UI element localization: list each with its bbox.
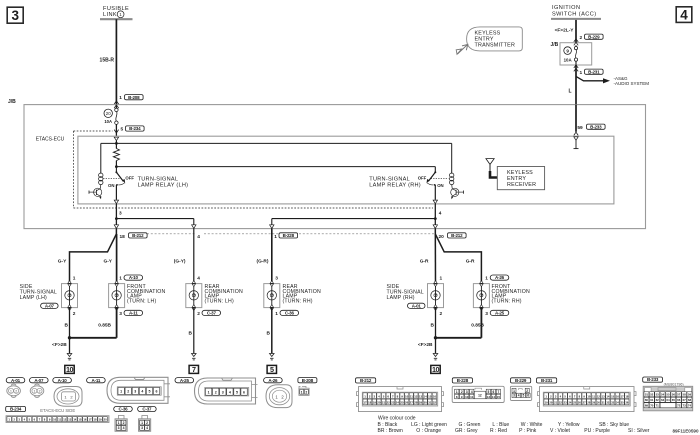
- svg-text:5: 5: [270, 365, 274, 374]
- svg-text:13: 13: [419, 394, 423, 398]
- svg-text:A-01: A-01: [412, 303, 422, 308]
- svg-text:B: B: [65, 322, 69, 328]
- svg-text:B-212: B-212: [451, 233, 463, 238]
- svg-text:17: 17: [621, 394, 624, 398]
- svg-text:C-36: C-36: [119, 407, 129, 412]
- svg-text:OFF: OFF: [125, 176, 134, 181]
- svg-text:12: 12: [478, 394, 482, 398]
- svg-text:2: 2: [73, 311, 76, 317]
- svg-text:1: 1: [141, 421, 143, 425]
- svg-text:14: 14: [424, 394, 428, 398]
- svg-text:B: B: [189, 331, 193, 337]
- svg-text:31: 31: [428, 401, 432, 405]
- svg-text:2: 2: [15, 389, 17, 393]
- svg-text:TURN-SIGNAL: TURN-SIGNAL: [138, 176, 179, 182]
- svg-text:R : Red: R : Red: [490, 428, 507, 434]
- svg-text:69: 69: [645, 404, 649, 408]
- svg-text:4: 4: [141, 390, 143, 394]
- svg-text:72: 72: [677, 404, 681, 408]
- svg-text:18: 18: [120, 234, 126, 240]
- svg-text:20: 20: [439, 234, 445, 240]
- svg-text:SI : Silver: SI : Silver: [628, 428, 650, 434]
- svg-text:2: 2: [440, 311, 443, 317]
- svg-text:G-R: G-R: [466, 259, 475, 265]
- svg-text:2: 2: [197, 311, 200, 317]
- svg-text:J/B: J/B: [551, 42, 559, 48]
- svg-text:-AUDIO SYSTEM: -AUDIO SYSTEM: [614, 81, 650, 86]
- svg-text:13: 13: [68, 418, 71, 422]
- svg-text:4: 4: [123, 426, 125, 430]
- svg-text:(TURN: RH): (TURN: RH): [283, 298, 313, 304]
- svg-text:G-R: G-R: [420, 259, 429, 265]
- svg-text:10A: 10A: [564, 58, 573, 63]
- svg-text:14: 14: [606, 394, 609, 398]
- svg-text:19: 19: [99, 418, 102, 422]
- svg-text:<F>2L-Y: <F>2L-Y: [555, 28, 575, 34]
- svg-text:<F>2B: <F>2B: [418, 342, 433, 348]
- svg-text:ENTRY: ENTRY: [475, 36, 494, 42]
- svg-text:1: 1: [456, 390, 458, 394]
- svg-text:11: 11: [592, 394, 595, 398]
- svg-text:56: 56: [672, 393, 676, 397]
- svg-text:3: 3: [222, 390, 224, 394]
- svg-text:3: 3: [118, 426, 120, 430]
- svg-text:29: 29: [592, 401, 595, 405]
- svg-text:6: 6: [492, 390, 494, 394]
- svg-text:3: 3: [513, 394, 515, 398]
- svg-text:3: 3: [11, 8, 19, 23]
- svg-text:1: 1: [119, 275, 122, 281]
- svg-text:27: 27: [410, 401, 414, 405]
- svg-text:20: 20: [104, 418, 107, 422]
- svg-text:G-Y: G-Y: [103, 259, 112, 265]
- svg-text:3: 3: [466, 390, 468, 394]
- svg-text:9: 9: [566, 48, 569, 53]
- svg-text:6: 6: [156, 390, 158, 394]
- svg-text:B-228: B-228: [283, 233, 295, 238]
- svg-text:19: 19: [545, 401, 548, 405]
- svg-text:53: 53: [656, 393, 660, 397]
- svg-text:0.85B: 0.85B: [471, 322, 484, 328]
- svg-text:16: 16: [433, 394, 437, 398]
- svg-text:36: 36: [625, 401, 628, 405]
- svg-text:10: 10: [465, 395, 469, 399]
- svg-text:70: 70: [650, 404, 654, 408]
- svg-text:3: 3: [141, 426, 143, 430]
- svg-text:KEYLESS: KEYLESS: [475, 30, 501, 36]
- svg-text:66: 66: [677, 398, 681, 402]
- svg-text:A-11: A-11: [92, 378, 101, 383]
- svg-text:(MU801796): (MU801796): [664, 382, 684, 386]
- svg-text:31: 31: [602, 401, 605, 405]
- svg-text:B-231: B-231: [588, 69, 600, 74]
- svg-text:14: 14: [492, 395, 496, 399]
- svg-text:A-10: A-10: [129, 275, 139, 280]
- svg-text:62: 62: [656, 398, 660, 402]
- svg-text:LINK: LINK: [103, 12, 117, 18]
- svg-text:B: B: [267, 331, 271, 337]
- svg-text:64: 64: [666, 398, 670, 402]
- svg-text:20: 20: [549, 401, 552, 405]
- svg-text:4: 4: [146, 426, 148, 430]
- svg-text:11: 11: [470, 395, 474, 399]
- svg-text:14: 14: [73, 418, 76, 422]
- svg-text:28: 28: [414, 401, 418, 405]
- svg-text:2: 2: [215, 390, 217, 394]
- svg-text:6: 6: [243, 390, 245, 394]
- svg-text:20: 20: [106, 111, 111, 116]
- svg-text:A-11: A-11: [129, 311, 138, 316]
- svg-text:A-26: A-26: [268, 378, 278, 383]
- svg-text:B-234: B-234: [129, 126, 141, 131]
- svg-text:19: 19: [373, 401, 377, 405]
- svg-text:LAMP RELAY (RH): LAMP RELAY (RH): [369, 183, 421, 189]
- svg-text:11: 11: [58, 418, 61, 422]
- svg-text:ETACS-ECU SIDE: ETACS-ECU SIDE: [40, 408, 75, 413]
- svg-text:B-228: B-228: [457, 378, 469, 383]
- svg-text:2: 2: [461, 390, 463, 394]
- svg-text:25: 25: [400, 401, 404, 405]
- svg-text:12: 12: [414, 394, 418, 398]
- svg-text:67: 67: [682, 398, 686, 402]
- svg-text:4: 4: [229, 390, 231, 394]
- svg-text:A-25: A-25: [180, 378, 190, 383]
- svg-text:15: 15: [78, 418, 81, 422]
- svg-text:65: 65: [672, 398, 676, 402]
- svg-text:PU : Purple: PU : Purple: [584, 428, 610, 434]
- svg-text:B-234: B-234: [10, 407, 22, 412]
- svg-text:1: 1: [513, 389, 515, 393]
- svg-text:51: 51: [645, 393, 649, 397]
- svg-text:16: 16: [83, 418, 86, 422]
- svg-text:B-229: B-229: [515, 378, 527, 383]
- svg-text:B-208: B-208: [128, 95, 140, 100]
- svg-text:1: 1: [485, 275, 488, 281]
- svg-text:68: 68: [688, 398, 692, 402]
- svg-text:A-25: A-25: [495, 311, 505, 316]
- svg-text:3: 3: [275, 275, 278, 281]
- svg-text:2: 2: [305, 390, 307, 394]
- svg-text:<F>2B: <F>2B: [52, 342, 67, 348]
- svg-text:7: 7: [192, 365, 196, 374]
- svg-text:24: 24: [568, 401, 571, 405]
- svg-text:B-233: B-233: [590, 124, 602, 129]
- svg-text:7: 7: [497, 390, 499, 394]
- svg-text:17: 17: [363, 401, 367, 405]
- svg-text:17: 17: [88, 418, 91, 422]
- svg-text:B-212: B-212: [132, 233, 144, 238]
- svg-text:1: 1: [73, 275, 76, 281]
- svg-text:A-01: A-01: [11, 378, 21, 383]
- svg-text:ENTRY: ENTRY: [507, 176, 526, 182]
- svg-text:4: 4: [197, 275, 200, 281]
- svg-text:26: 26: [578, 401, 581, 405]
- svg-text:59: 59: [577, 125, 583, 131]
- svg-text:KEYLESS: KEYLESS: [507, 170, 533, 176]
- svg-text:(TURN: LH): (TURN: LH): [127, 298, 156, 304]
- svg-text:3: 3: [119, 311, 122, 317]
- svg-text:GR : Grey: GR : Grey: [455, 428, 478, 434]
- svg-text:15B-R: 15B-R: [100, 58, 115, 64]
- svg-text:29: 29: [419, 401, 423, 405]
- svg-text:1: 1: [120, 390, 122, 394]
- svg-text:L: L: [568, 88, 571, 94]
- svg-text:13: 13: [487, 395, 491, 399]
- svg-text:TURN-SIGNAL: TURN-SIGNAL: [369, 176, 410, 182]
- svg-text:TRANSMITTER: TRANSMITTER: [475, 43, 516, 49]
- svg-text:73: 73: [682, 404, 686, 408]
- svg-text:23: 23: [391, 401, 395, 405]
- svg-text:10: 10: [587, 394, 590, 398]
- svg-text:27: 27: [583, 401, 586, 405]
- svg-text:54: 54: [661, 393, 665, 397]
- svg-text:1: 1: [301, 390, 303, 394]
- svg-text:24: 24: [396, 401, 400, 405]
- svg-text:B: B: [431, 322, 435, 328]
- svg-text:J/B: J/B: [8, 99, 16, 105]
- svg-text:5: 5: [523, 394, 525, 398]
- svg-text:2: 2: [526, 389, 528, 393]
- svg-text:18: 18: [368, 401, 372, 405]
- svg-text:1: 1: [440, 275, 443, 281]
- svg-text:74: 74: [688, 404, 692, 408]
- svg-text:30: 30: [424, 401, 428, 405]
- svg-text:10A: 10A: [104, 119, 112, 124]
- svg-text:LAMP (LH): LAMP (LH): [20, 295, 47, 301]
- svg-text:2: 2: [123, 421, 125, 425]
- svg-text:(TURN: LH): (TURN: LH): [205, 298, 234, 304]
- svg-text:11: 11: [410, 394, 413, 398]
- svg-text:20: 20: [377, 401, 381, 405]
- svg-text:G-Y: G-Y: [58, 259, 67, 265]
- svg-text:-AS&G: -AS&G: [614, 76, 629, 81]
- svg-text:89F11E0590: 89F11E0590: [672, 429, 699, 434]
- svg-text:34: 34: [616, 401, 619, 405]
- svg-text:B-212: B-212: [360, 378, 372, 383]
- svg-text:0.85B: 0.85B: [98, 322, 111, 328]
- svg-text:RECEIVER: RECEIVER: [507, 182, 536, 188]
- svg-text:C-37: C-37: [142, 407, 152, 412]
- svg-text:3: 3: [119, 210, 122, 216]
- svg-text:4: 4: [471, 390, 473, 394]
- svg-text:52: 52: [650, 393, 654, 397]
- svg-text:13: 13: [602, 394, 605, 398]
- svg-text:61: 61: [650, 398, 654, 402]
- svg-text:25: 25: [573, 401, 576, 405]
- svg-text:15: 15: [611, 394, 614, 398]
- svg-text:LAMP (RH): LAMP (RH): [387, 295, 415, 301]
- svg-text:3: 3: [485, 311, 488, 317]
- svg-text:(G-R): (G-R): [257, 259, 269, 265]
- svg-text:B-231: B-231: [541, 378, 553, 383]
- svg-text:10: 10: [432, 365, 439, 374]
- svg-text:18: 18: [94, 418, 97, 422]
- svg-text:B-208: B-208: [302, 378, 314, 383]
- svg-text:22: 22: [387, 401, 391, 405]
- svg-text:C-36: C-36: [285, 311, 295, 316]
- svg-text:23: 23: [564, 401, 567, 405]
- svg-text:30: 30: [597, 401, 600, 405]
- svg-text:58: 58: [682, 393, 686, 397]
- svg-text:A-26: A-26: [495, 275, 505, 280]
- svg-text:(TURN: RH): (TURN: RH): [492, 298, 522, 304]
- svg-text:2: 2: [39, 389, 41, 393]
- svg-text:P : Pink: P : Pink: [519, 428, 537, 434]
- svg-text:33: 33: [611, 401, 614, 405]
- svg-text:BR : Brown: BR : Brown: [378, 428, 404, 434]
- svg-text:5: 5: [236, 390, 238, 394]
- svg-text:35: 35: [621, 401, 624, 405]
- svg-text:60: 60: [645, 398, 649, 402]
- svg-text:2: 2: [580, 35, 583, 41]
- svg-text:32: 32: [606, 401, 609, 405]
- svg-text:V : Violet: V : Violet: [550, 428, 571, 434]
- svg-text:Wire colour code: Wire colour code: [378, 415, 416, 421]
- svg-text:FUSIBLE: FUSIBLE: [103, 6, 129, 12]
- svg-text:32: 32: [433, 401, 437, 405]
- svg-text:10: 10: [53, 418, 56, 422]
- svg-text:12: 12: [597, 394, 600, 398]
- svg-text:4: 4: [197, 234, 200, 240]
- svg-text:71: 71: [656, 404, 660, 408]
- svg-text:3: 3: [134, 390, 136, 394]
- svg-text:IGNITION: IGNITION: [552, 5, 580, 11]
- svg-text:SWITCH (ACC): SWITCH (ACC): [552, 12, 597, 18]
- svg-text:5: 5: [148, 390, 150, 394]
- svg-text:OFF: OFF: [418, 176, 427, 181]
- svg-text:A-10: A-10: [58, 378, 68, 383]
- svg-text:LAMP RELAY (LH): LAMP RELAY (LH): [138, 183, 189, 189]
- svg-text:5: 5: [487, 390, 489, 394]
- svg-text:ETACS-ECU: ETACS-ECU: [36, 137, 65, 143]
- svg-text:A-07: A-07: [34, 378, 44, 383]
- svg-text:55: 55: [666, 393, 670, 397]
- svg-text:2: 2: [127, 390, 129, 394]
- svg-text:59: 59: [688, 393, 692, 397]
- svg-text:4: 4: [518, 394, 520, 398]
- svg-text:C-37: C-37: [207, 311, 217, 316]
- svg-text:26: 26: [405, 401, 409, 405]
- svg-text:1: 1: [274, 234, 277, 240]
- svg-text:28: 28: [587, 401, 590, 405]
- svg-text:15: 15: [428, 394, 432, 398]
- svg-text:21: 21: [382, 401, 386, 405]
- svg-text:10: 10: [66, 365, 73, 374]
- svg-text:57: 57: [677, 393, 681, 397]
- svg-text:4: 4: [439, 210, 442, 216]
- svg-text:6: 6: [527, 394, 529, 398]
- svg-text:1: 1: [33, 389, 35, 393]
- svg-text:21: 21: [554, 401, 557, 405]
- svg-text:16: 16: [616, 394, 619, 398]
- svg-text:ON: ON: [437, 183, 443, 188]
- svg-text:12: 12: [63, 418, 66, 422]
- svg-text:1: 1: [118, 421, 120, 425]
- svg-text:15: 15: [497, 395, 501, 399]
- svg-text:B-229: B-229: [588, 34, 600, 39]
- svg-text:1: 1: [119, 95, 122, 101]
- svg-text:4: 4: [680, 7, 688, 22]
- svg-text:O : Orange: O : Orange: [416, 428, 441, 434]
- svg-text:(G-Y): (G-Y): [174, 259, 186, 265]
- svg-text:1: 1: [580, 70, 583, 76]
- svg-text:1: 1: [208, 390, 210, 394]
- svg-text:A-07: A-07: [45, 303, 55, 308]
- svg-text:B-233: B-233: [647, 377, 659, 382]
- svg-text:ON: ON: [108, 183, 114, 188]
- svg-text:1: 1: [10, 389, 12, 393]
- svg-text:63: 63: [661, 398, 665, 402]
- svg-text:5: 5: [121, 127, 124, 133]
- svg-text:18: 18: [625, 394, 628, 398]
- svg-text:22: 22: [559, 401, 562, 405]
- svg-text:2: 2: [146, 421, 148, 425]
- svg-text:10: 10: [405, 394, 409, 398]
- svg-text:1: 1: [275, 311, 278, 317]
